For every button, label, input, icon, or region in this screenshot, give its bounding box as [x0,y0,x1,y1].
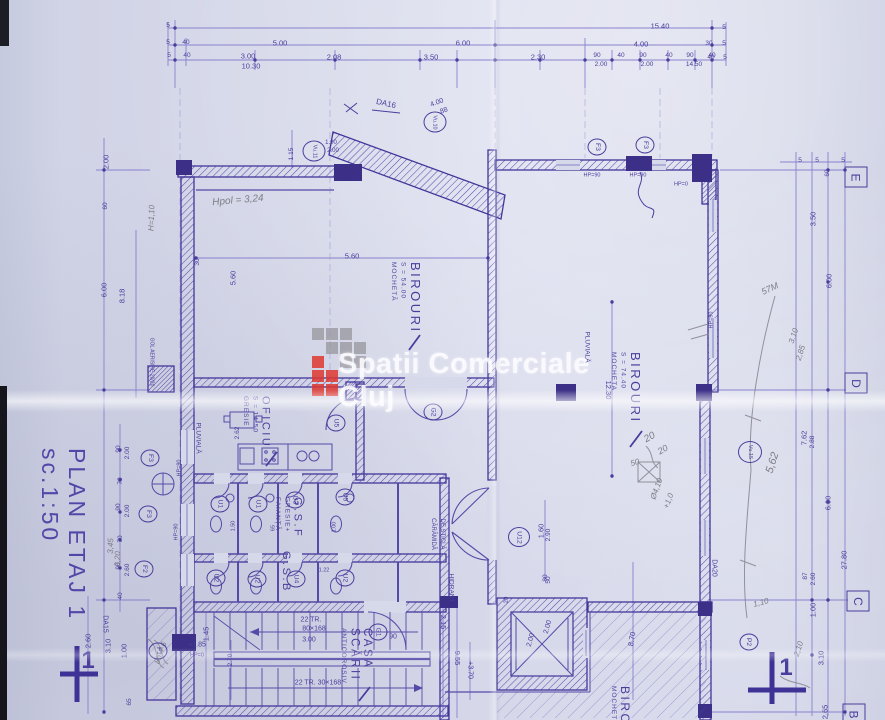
dim-label: HIDRANT [447,574,454,603]
dim-label: PLUVIALĂ [583,331,590,362]
circle-label-text: U5 [332,419,339,428]
dim-label: 5 [722,41,726,48]
dim-label: 65 [127,698,134,705]
dim-label: 2.00 [595,62,608,69]
dim-label: 60 [103,202,110,209]
circle-label: U2 [248,571,267,588]
dim-label: HP=0 [190,653,204,659]
dim-label: 3.00 [302,637,316,644]
dim-label: 90 [116,445,123,452]
labels-layer: 15.405.006.004.003.0010.302.083.502.3090… [0,0,885,720]
dim-label: 7.62 [800,431,808,446]
dim-label: 3.10 [817,651,825,666]
room-name: BIROURI [408,262,422,334]
dim-label: HP=0 [674,182,688,188]
dim-label: 2.00 [641,62,654,69]
circle-label: F3 [141,450,160,467]
dim-label: 90 [686,53,693,60]
dim-label: 2,10 [793,640,805,657]
circle-label: Vu.10 [424,112,447,133]
circle-label-text: F1 [155,647,162,655]
room-sublabel: S = 54.00 [398,262,408,334]
dim-label: PLUVIALĂ [194,422,201,453]
circle-label-text: F2 [141,565,148,573]
dim-label: 2.65 [821,705,829,720]
room-name: CASA SCĂRII [348,628,373,720]
dim-label: 30 [195,258,202,265]
dim-label: 5 [166,40,170,47]
grid-axis-letter: D [849,379,863,388]
dim-label: 8.18 [118,289,126,304]
circle-label: P2 [740,634,759,651]
dim-label: 2.70 [228,654,235,667]
dim-label: 5.60 [345,252,360,260]
grid-axis-B: B [843,704,866,720]
circle-label: G2 [424,404,443,421]
dim-label: 2.88 [810,436,817,449]
dim-label: 60 [825,169,832,176]
dim-label: 6.00 [456,39,471,47]
dim-label: 2.30 [531,53,546,61]
dim-label: 6.00 [824,496,832,511]
circle-label: U5 [327,415,346,432]
dim-label: 20 [643,431,658,445]
dim-label: H=1,10 [148,205,157,231]
dim-label: 1.00 [120,644,128,659]
circle-label-text: U1 [216,500,223,509]
circle-label-text: Vu.11 [311,144,317,158]
dim-label: 3.00 [241,52,256,60]
scan-edge [0,0,9,46]
dim-label: Ø4,10 [650,477,665,500]
dim-label: 40 [665,53,672,60]
dim-label: 15.40 [651,22,670,30]
dim-label: 5 [723,55,727,62]
room-name: BIROURI [618,686,631,720]
circle-label: F3 [139,506,158,523]
dim-label: 5.00 [273,39,288,47]
dim-label: 5 [815,158,819,165]
room-label-birouri: BIROURIS = 54.00MOCHETĂ [388,262,422,334]
circle-label-text: G2 [429,407,436,416]
dim-label: 3.50 [424,53,439,61]
circle-label: U5 [336,489,355,506]
circle-label-text: Vu.15 [747,445,753,459]
dim-label: HP=90 [174,524,180,541]
dim-label: DA20 [711,559,718,577]
dim-label: 3.50 [809,212,817,227]
circle-label-text: Vu.10 [432,115,438,129]
dim-label: DA15 [102,615,109,633]
room-name: G.S.F [292,497,304,538]
plan-title: PLAN ETAJ 1 sc.1:50 [36,448,90,720]
dim-label: 4.00 [634,40,649,48]
dim-label: 50 [630,458,641,468]
circle-label: U1 [211,496,230,513]
circle-label: F3 [588,139,607,156]
room-sublabel: S = 14.50 [250,396,260,448]
dim-label: 2.00 [125,447,132,460]
room-name: G.S.B [280,551,292,593]
dim-label: GOL AERISIRE 20/20 [149,338,154,387]
room-sublabel: MOCHETĂ [388,262,398,334]
dim-label: 1.60 [537,524,545,539]
room-name: OFICIU [260,396,272,448]
room-sublabel: MOCHETA [608,352,618,424]
room-sublabel: GRESIE [240,396,250,448]
room-label-g-s-f: G.S.FGRESIE+FAIANȚĂ [272,497,304,538]
circle-label-text: U2 [341,574,348,583]
room-name: BIROURI [628,352,642,424]
room-sublabel: ANTICOROSIV [338,628,348,720]
circle-label: U2 [207,570,226,587]
dim-label: 1.00 [332,522,338,533]
dim-label: 5 [798,158,802,165]
room-sublabel: S = 74.40 [618,352,628,424]
dim-label: 40 [617,53,624,60]
circle-label: Vu.11 [303,141,326,162]
scan-edge [0,386,7,720]
dim-label: Hpol = 3,24 [212,194,264,208]
dim-label: 6.00 [100,283,108,298]
dim-label: 1,10 [752,597,769,609]
circle-label-text: F3 [642,141,649,149]
dim-label: 70 [118,477,125,484]
dim-label: 1.00 [325,140,337,146]
dim-label: 22 TR. 30×168 [295,680,341,687]
dim-label: CĂRĂMIDĂ [430,518,436,550]
circle-label: F2 [135,561,154,578]
room-label-oficiu: OFICIUS = 14.50GRESIE [240,396,272,448]
grid-axis-C: C [847,591,870,612]
dim-label: 40 [182,40,189,47]
circle-label-text: U2 [212,574,219,583]
dim-label: 5,62 [764,451,781,475]
blueprint-scan: Spatii Comerciale Cluj 15.405.006.004.00… [0,0,885,720]
circle-label-text: G1 [374,627,381,636]
circle-label: F1 [149,643,168,660]
circle-label: U2 [336,570,355,587]
dim-label: 70 [118,535,125,542]
dim-label: 9.55 [453,651,461,666]
dim-label: DA16 [375,98,396,110]
circle-label-text: P2 [745,638,752,646]
dim-label: 2.00 [102,155,110,170]
dim-label: 22 TR. [301,617,322,624]
dim-label: 90 [389,634,397,641]
dim-label: 40 [707,55,714,62]
dim-label: 2,20 [114,551,123,567]
dim-label: 5 [167,53,171,60]
dim-label: 2.00 [543,620,553,635]
dim-label: 90 [116,503,123,510]
dim-label: 90 [639,53,646,60]
dim-label: 2.60 [125,564,132,577]
dim-label: 2.60 [811,573,818,586]
room-label-birouri: BIROURIS = 74.40MOCHETA [608,352,642,424]
dim-label: 57M [760,281,780,297]
dim-label: 3,10 [788,327,800,344]
dim-label: 1.50 [231,521,237,532]
dim-label: DE STICLĂ [439,518,445,549]
dim-label: 40 [183,53,190,60]
dim-label: 5 [841,158,845,165]
circle-label-text: U4 [292,575,299,584]
circle-label-text: U5 [341,493,348,502]
dim-label: 14.50 [686,62,702,69]
circle-label: U1 [249,496,268,513]
dim-label: 90 [593,53,600,60]
circle-label-text: U12 [516,531,523,543]
dim-label: 20 [504,597,510,604]
dim-label: 2.90 [546,529,553,542]
dim-label: HP=90 [177,460,183,477]
dim-label: 1.15 [289,148,296,161]
dim-label: 1.22 [319,568,330,574]
dim-label: 40 [118,592,125,599]
dim-label: 1.45 [202,627,210,642]
circle-label-text: F3 [594,143,601,151]
dim-label: 87 [803,572,810,579]
dim-label: 20 [656,444,669,457]
circle-label-text: U2 [253,575,260,584]
dim-label: 2.08 [327,53,342,61]
dim-label: 2.00 [125,505,132,518]
grid-axis-E: E [845,167,868,188]
grid-axis-letter: E [849,173,863,181]
dim-label: 1.00 [809,603,817,618]
dim-label: 80×168 [302,626,326,633]
room-label-g-s-b: G.S.B [280,551,292,593]
dim-label: 2.00 [526,633,536,648]
circle-label-text: F3 [145,510,152,518]
dim-label: HP=90 [630,173,647,179]
grid-axis-letter: C [851,597,865,606]
dim-label: 5.60 [229,271,237,286]
room-sublabel: MOCHETĂ [608,686,618,720]
room-sublabel: GRESIE+ [282,497,292,538]
circle-label-text: U1 [254,500,261,509]
room-sublabel: FAIANȚĂ [272,497,282,538]
grid-axis-letter: B [847,710,861,718]
dim-label: +1.85 [188,642,206,649]
dim-label: 2.15 [439,615,447,630]
circle-label: F3 [636,137,655,154]
dim-label: 27.80 [840,551,848,570]
dim-label: 10.30 [242,62,261,70]
circle-label: U12 [508,527,530,547]
circle-label: Vu.15 [738,441,762,463]
room-label-casa-sc-rii: CASA SCĂRIIANTICOROSIV [338,628,373,720]
dim-label: 8.70 [627,631,637,647]
dim-label: +1,0 [663,492,676,510]
dim-label: 30 [705,41,712,48]
dim-label: 5 [722,25,726,32]
dim-label: 5 [166,23,170,30]
grid-axis-D: D [845,373,868,394]
dim-label: 50 [546,576,553,583]
dim-label: 6.00 [825,274,833,289]
dim-label: HP=90 [709,312,715,329]
dim-label: HP=90 [584,173,601,179]
dim-label: 3.10 [104,639,112,654]
dim-label: 2,85 [795,344,807,361]
dim-label: 2.00 [327,148,339,154]
section-marker-number: 1 [779,656,792,680]
dim-label: +3.70 [467,661,474,679]
circle-label-text: F3 [147,454,154,462]
room-label-birouri: BIROURIMOCHETĂ [608,686,631,720]
